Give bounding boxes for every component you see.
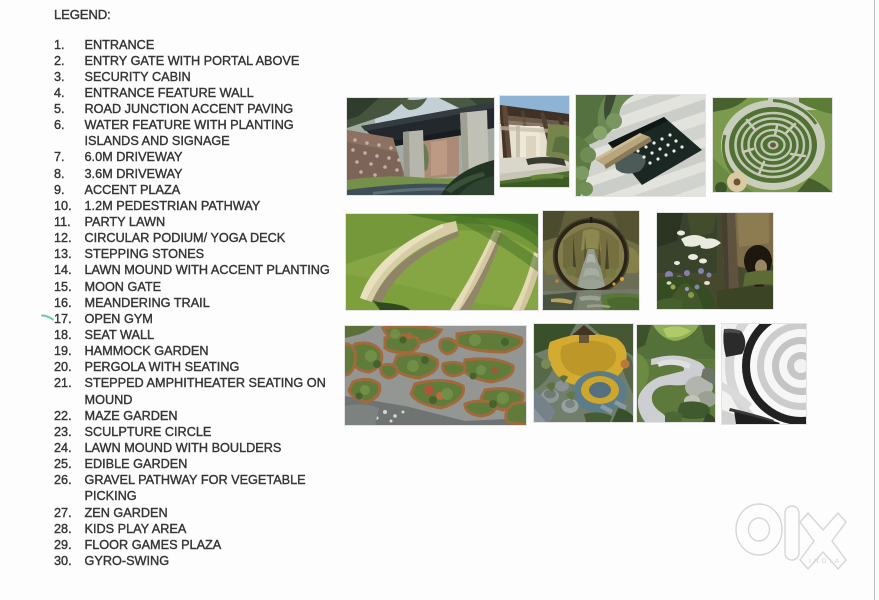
svg-text:INDIA: INDIA: [809, 558, 842, 565]
